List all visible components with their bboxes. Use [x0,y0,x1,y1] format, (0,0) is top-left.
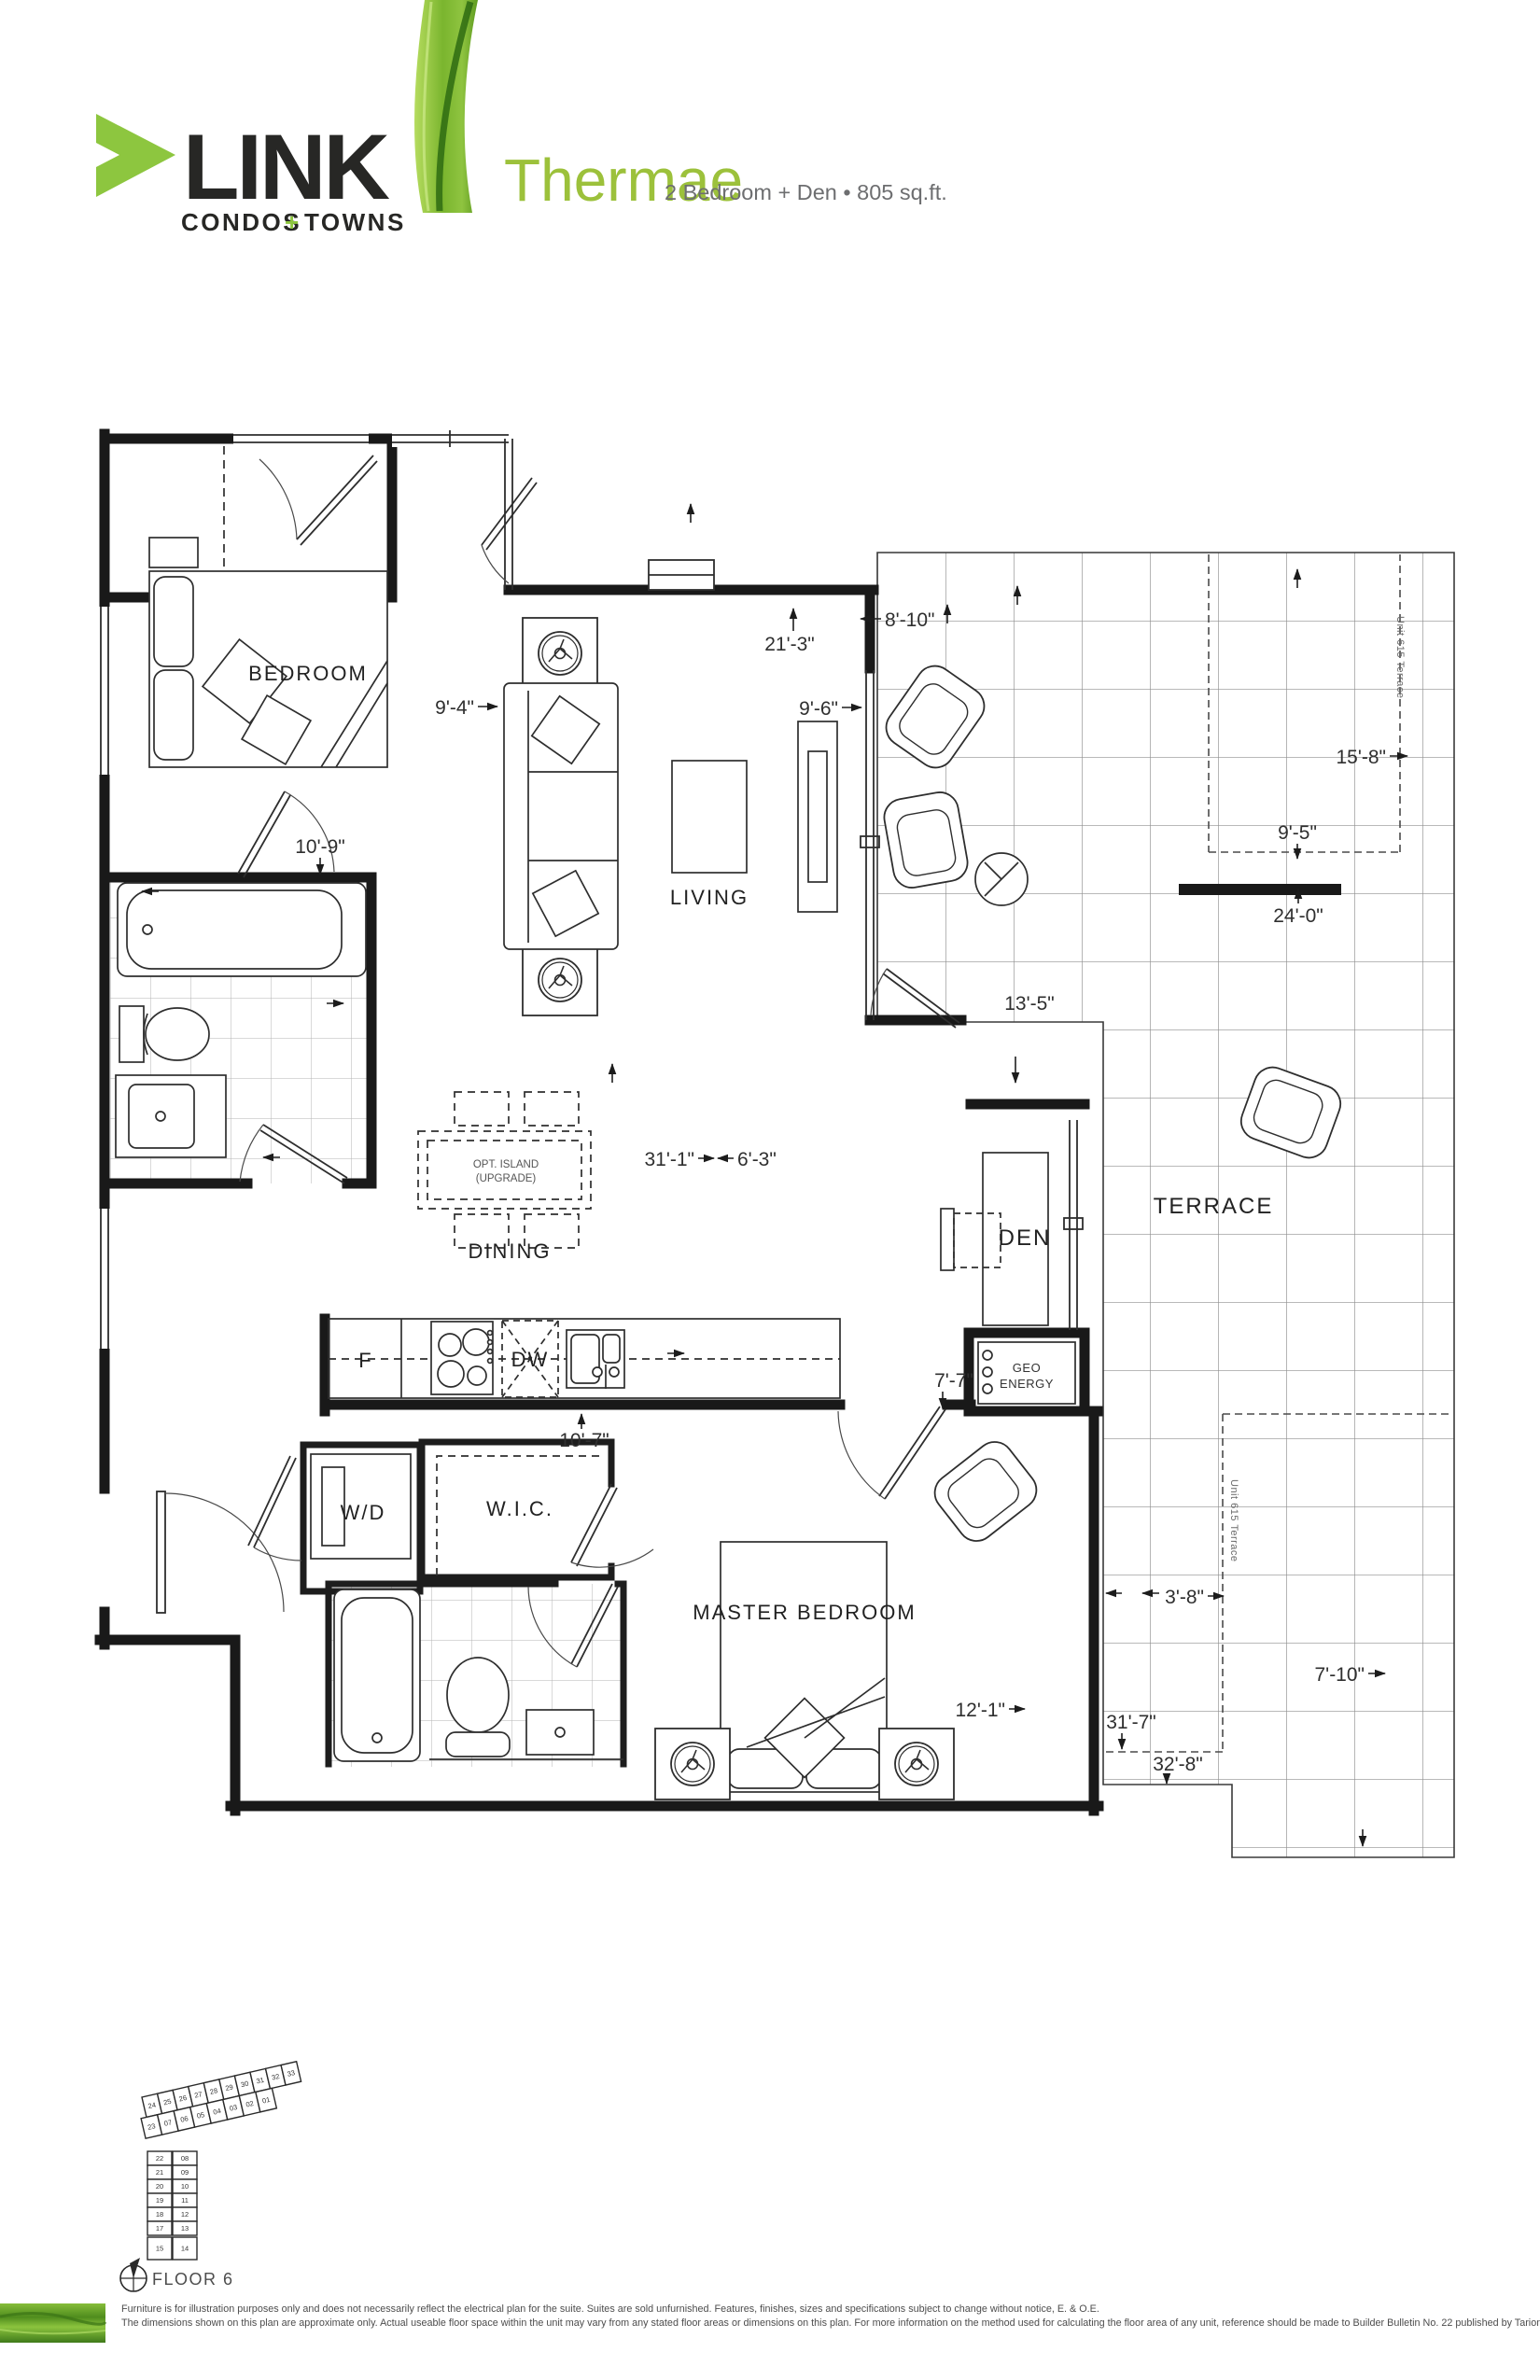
svg-text:15'-8": 15'-8" [1337,747,1387,768]
toilet-1 [119,1006,209,1062]
dim-21-3: 21'-3" [764,609,815,655]
living-speaker-top [523,618,597,689]
wic-label: W.I.C. [486,1497,553,1520]
bedroom-bed [149,538,387,767]
keyplan-unit-number: 11 [181,2196,189,2205]
floorplan-page: LINK CONDOS + TOWNS Thermae 2 Bedroom + … [0,0,1540,2380]
unit-615-terrace-label-upper: Unit 615 Terrace [1394,616,1406,699]
living-sliding-door [866,670,874,1020]
keyplan-unit-number: 19 [156,2196,163,2205]
sofa [504,683,618,949]
keyplan-unit-number: 08 [181,2154,189,2163]
floor-label: FLOOR 6 [152,2270,234,2289]
kitchen-counter [329,1319,840,1398]
master-bedroom-label: MASTER BEDROOM [693,1601,916,1624]
living-label: LIVING [670,886,749,909]
keyplan-unit-number: 18 [156,2210,163,2219]
svg-text:32'-8": 32'-8" [1153,1754,1203,1775]
master-bed [721,1542,887,1792]
svg-text:31'-7": 31'-7" [1106,1712,1156,1733]
nightstand [149,538,198,567]
footer: Furniture is for illustration purposes o… [0,2303,1540,2343]
svg-text:21'-3": 21'-3" [764,634,815,655]
disclaimer-line-1: Furniture is for illustration purposes o… [121,2303,1099,2315]
svg-text:6'-3": 6'-3" [737,1149,777,1170]
keyplan-unit-number: 09 [181,2168,189,2177]
svg-text:31'-1": 31'-1" [645,1149,695,1170]
header: LINK CONDOS + TOWNS Thermae 2 Bedroom + … [96,0,947,236]
bedroom-label: BEDROOM [248,662,368,685]
closet-door [259,455,377,545]
keyplan-unit-number: 17 [156,2224,163,2233]
svg-text:12'-1": 12'-1" [956,1700,1006,1721]
dim-12-1: 12'-1" [956,1700,1026,1721]
unit-615-terrace-label-lower: Unit 615 Terrace [1228,1479,1239,1562]
terrace-round-table [975,853,1028,905]
keyplan-unit-number: 20 [156,2182,163,2191]
disclaimer-line-2: The dimensions shown on this plan are ap… [121,2317,1540,2329]
logo-wordmark: LINK [183,115,389,218]
svg-text:7'-10": 7'-10" [1315,1664,1365,1686]
keyplan-wing-top: 242526272829303132332307060504030201 [136,2062,305,2138]
master-armchair [928,1435,1044,1548]
vanity-1 [116,1075,226,1157]
keyplan-unit-number: 14 [181,2245,189,2253]
wd-door [248,1456,301,1561]
island-label-2: (UPGRADE) [476,1173,537,1184]
wd-label: W/D [341,1501,386,1524]
dim-31-1: 31'-1" [645,1149,715,1170]
svg-text:10'-7": 10'-7" [559,1430,609,1451]
toilet-2 [446,1658,510,1757]
living-speaker-bottom [523,945,597,1015]
dim-10-7: 10'-7" [559,1414,609,1451]
svg-text:3'-8": 3'-8" [1165,1587,1204,1608]
geo-label-2: ENERGY [1000,1377,1054,1391]
grass-blade-image [414,0,478,213]
link-logo-chevron-icon [96,114,175,197]
terrace-chair-2 [881,790,970,890]
svg-text:13'-5": 13'-5" [1004,993,1055,1015]
keyplan-unit-number: 22 [156,2154,163,2163]
coffee-table [672,761,747,873]
master-door [838,1407,945,1499]
master-speaker-right [879,1729,954,1799]
dim-10-9: 10'-9" [295,836,345,875]
svg-text:8'-10": 8'-10" [885,609,935,631]
svg-text:7'-7": 7'-7" [934,1370,973,1392]
logo-tagline-plus: + [285,208,299,236]
den-label: DEN [999,1225,1052,1251]
dishwasher-label: DW [511,1348,550,1371]
master-speaker-left [655,1729,730,1799]
keyplan-unit-number: 12 [181,2210,189,2219]
keyplan-unit-number: 13 [181,2224,189,2233]
keyplan-wing-vertical: 2221201918170809101112131514 [147,2151,197,2260]
island-label-1: OPT. ISLAND [473,1159,539,1170]
dim-13-5: 13'-5" [1004,993,1055,1083]
dim-9-6: 9'-6" [799,698,861,720]
floorplan-canvas: LINK CONDOS + TOWNS Thermae 2 Bedroom + … [0,0,1540,2380]
svg-text:9'-4": 9'-4" [435,697,474,719]
compass-icon [120,2258,147,2291]
den-sliding-door [1070,1120,1077,1330]
media-console [798,721,837,912]
cooktop [431,1322,493,1394]
wic-door [571,1484,653,1567]
fridge-label: F [358,1349,372,1372]
plan-specs: 2 Bedroom + Den • 805 sq.ft. [665,180,947,204]
keyplan: 242526272829303132332307060504030201 222… [120,2062,306,2291]
logo-tagline-condos: CONDOS [181,208,301,236]
dim-9-4: 9'-4" [435,697,497,719]
dim-6-3: 6'-3" [718,1149,777,1170]
svg-text:9'-6": 9'-6" [799,698,838,720]
kitchen-sink [567,1330,624,1389]
logo-tagline-towns: TOWNS [304,208,406,236]
terrace-label: TERRACE [1154,1194,1274,1219]
keyplan-unit-number: 10 [181,2182,189,2191]
svg-text:24'-0": 24'-0" [1273,905,1323,927]
dining-label: DINING [469,1239,552,1263]
keyplan-unit-number: 15 [156,2245,163,2253]
hall-door [482,478,537,583]
svg-text:10'-9": 10'-9" [295,836,345,858]
geo-label-1: GEO [1013,1361,1041,1375]
svg-text:9'-5": 9'-5" [1278,822,1317,844]
keyplan-unit-number: 21 [156,2168,163,2177]
